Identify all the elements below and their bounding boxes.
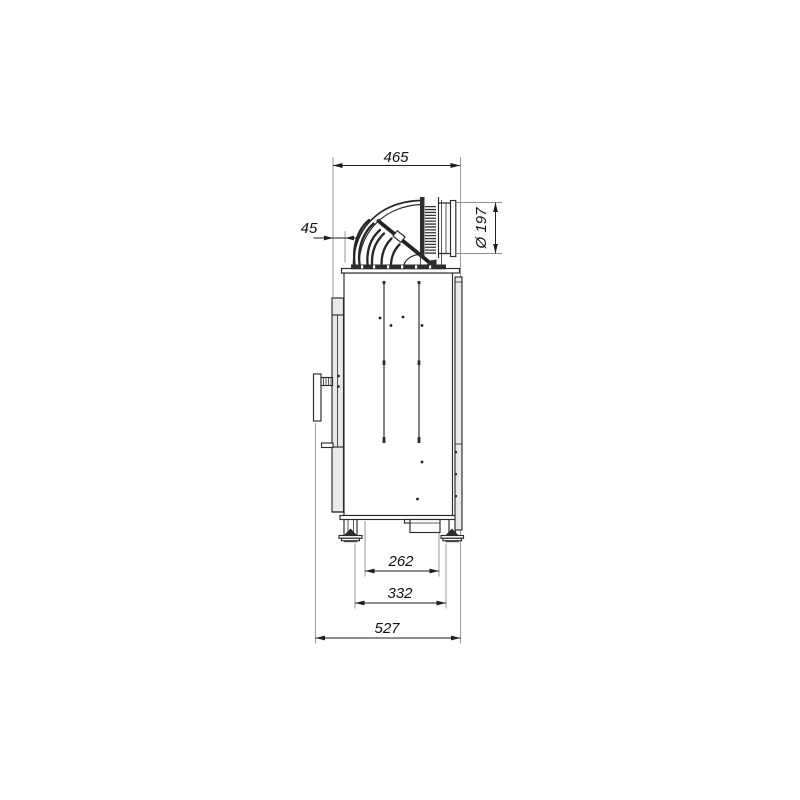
technical-drawing-canvas: 465 45 Ø 197 262 332 527 bbox=[0, 0, 800, 800]
dimension-arrow bbox=[345, 236, 354, 241]
dimension-feet-inner-span: 262 bbox=[365, 553, 439, 573]
dimension-flue-diameter: Ø 197 bbox=[473, 203, 498, 254]
dimension-arrow bbox=[316, 636, 326, 641]
damper-rod bbox=[377, 219, 437, 266]
pipe-end-ring bbox=[451, 201, 456, 257]
dimension-feet-outer-label: 332 bbox=[387, 585, 413, 602]
left-adjustable-foot bbox=[339, 529, 362, 542]
dimension-feet-inner-label: 262 bbox=[387, 553, 414, 570]
firebox-body bbox=[340, 269, 460, 520]
bracket-plate bbox=[314, 374, 322, 421]
dimension-arrow bbox=[493, 203, 498, 213]
dimension-top-width-label: 465 bbox=[383, 149, 409, 166]
flue-elbow bbox=[354, 201, 422, 265]
dimension-arrow bbox=[355, 601, 365, 606]
dimension-arrow bbox=[324, 236, 333, 241]
dimension-flue-diameter-label: Ø 197 bbox=[473, 207, 490, 250]
dimension-arrow bbox=[493, 244, 498, 254]
dimension-total-depth: 527 bbox=[316, 620, 461, 640]
dimension-front-offset-label: 45 bbox=[301, 220, 318, 237]
dimension-top-width: 465 bbox=[333, 149, 460, 168]
dimension-arrow bbox=[430, 569, 440, 574]
corrugated-connector bbox=[420, 197, 442, 265]
rear-heat-shield bbox=[455, 277, 462, 530]
front-door-frame bbox=[322, 298, 345, 516]
deflector-vanes bbox=[354, 220, 399, 264]
ash-pan-box bbox=[405, 520, 441, 533]
dimension-arrow bbox=[333, 163, 343, 168]
body-shell bbox=[344, 273, 453, 516]
dimension-total-depth-label: 527 bbox=[374, 620, 400, 637]
dimension-arrow bbox=[451, 163, 461, 168]
dimension-front-offset: 45 bbox=[301, 220, 358, 240]
dimension-feet-outer-span: 332 bbox=[355, 585, 446, 605]
dimension-arrow bbox=[437, 601, 447, 606]
bottom-plate bbox=[340, 516, 456, 520]
door-latch-plate bbox=[322, 443, 334, 448]
dimension-arrow bbox=[365, 569, 375, 574]
dimension-arrow bbox=[451, 636, 461, 641]
